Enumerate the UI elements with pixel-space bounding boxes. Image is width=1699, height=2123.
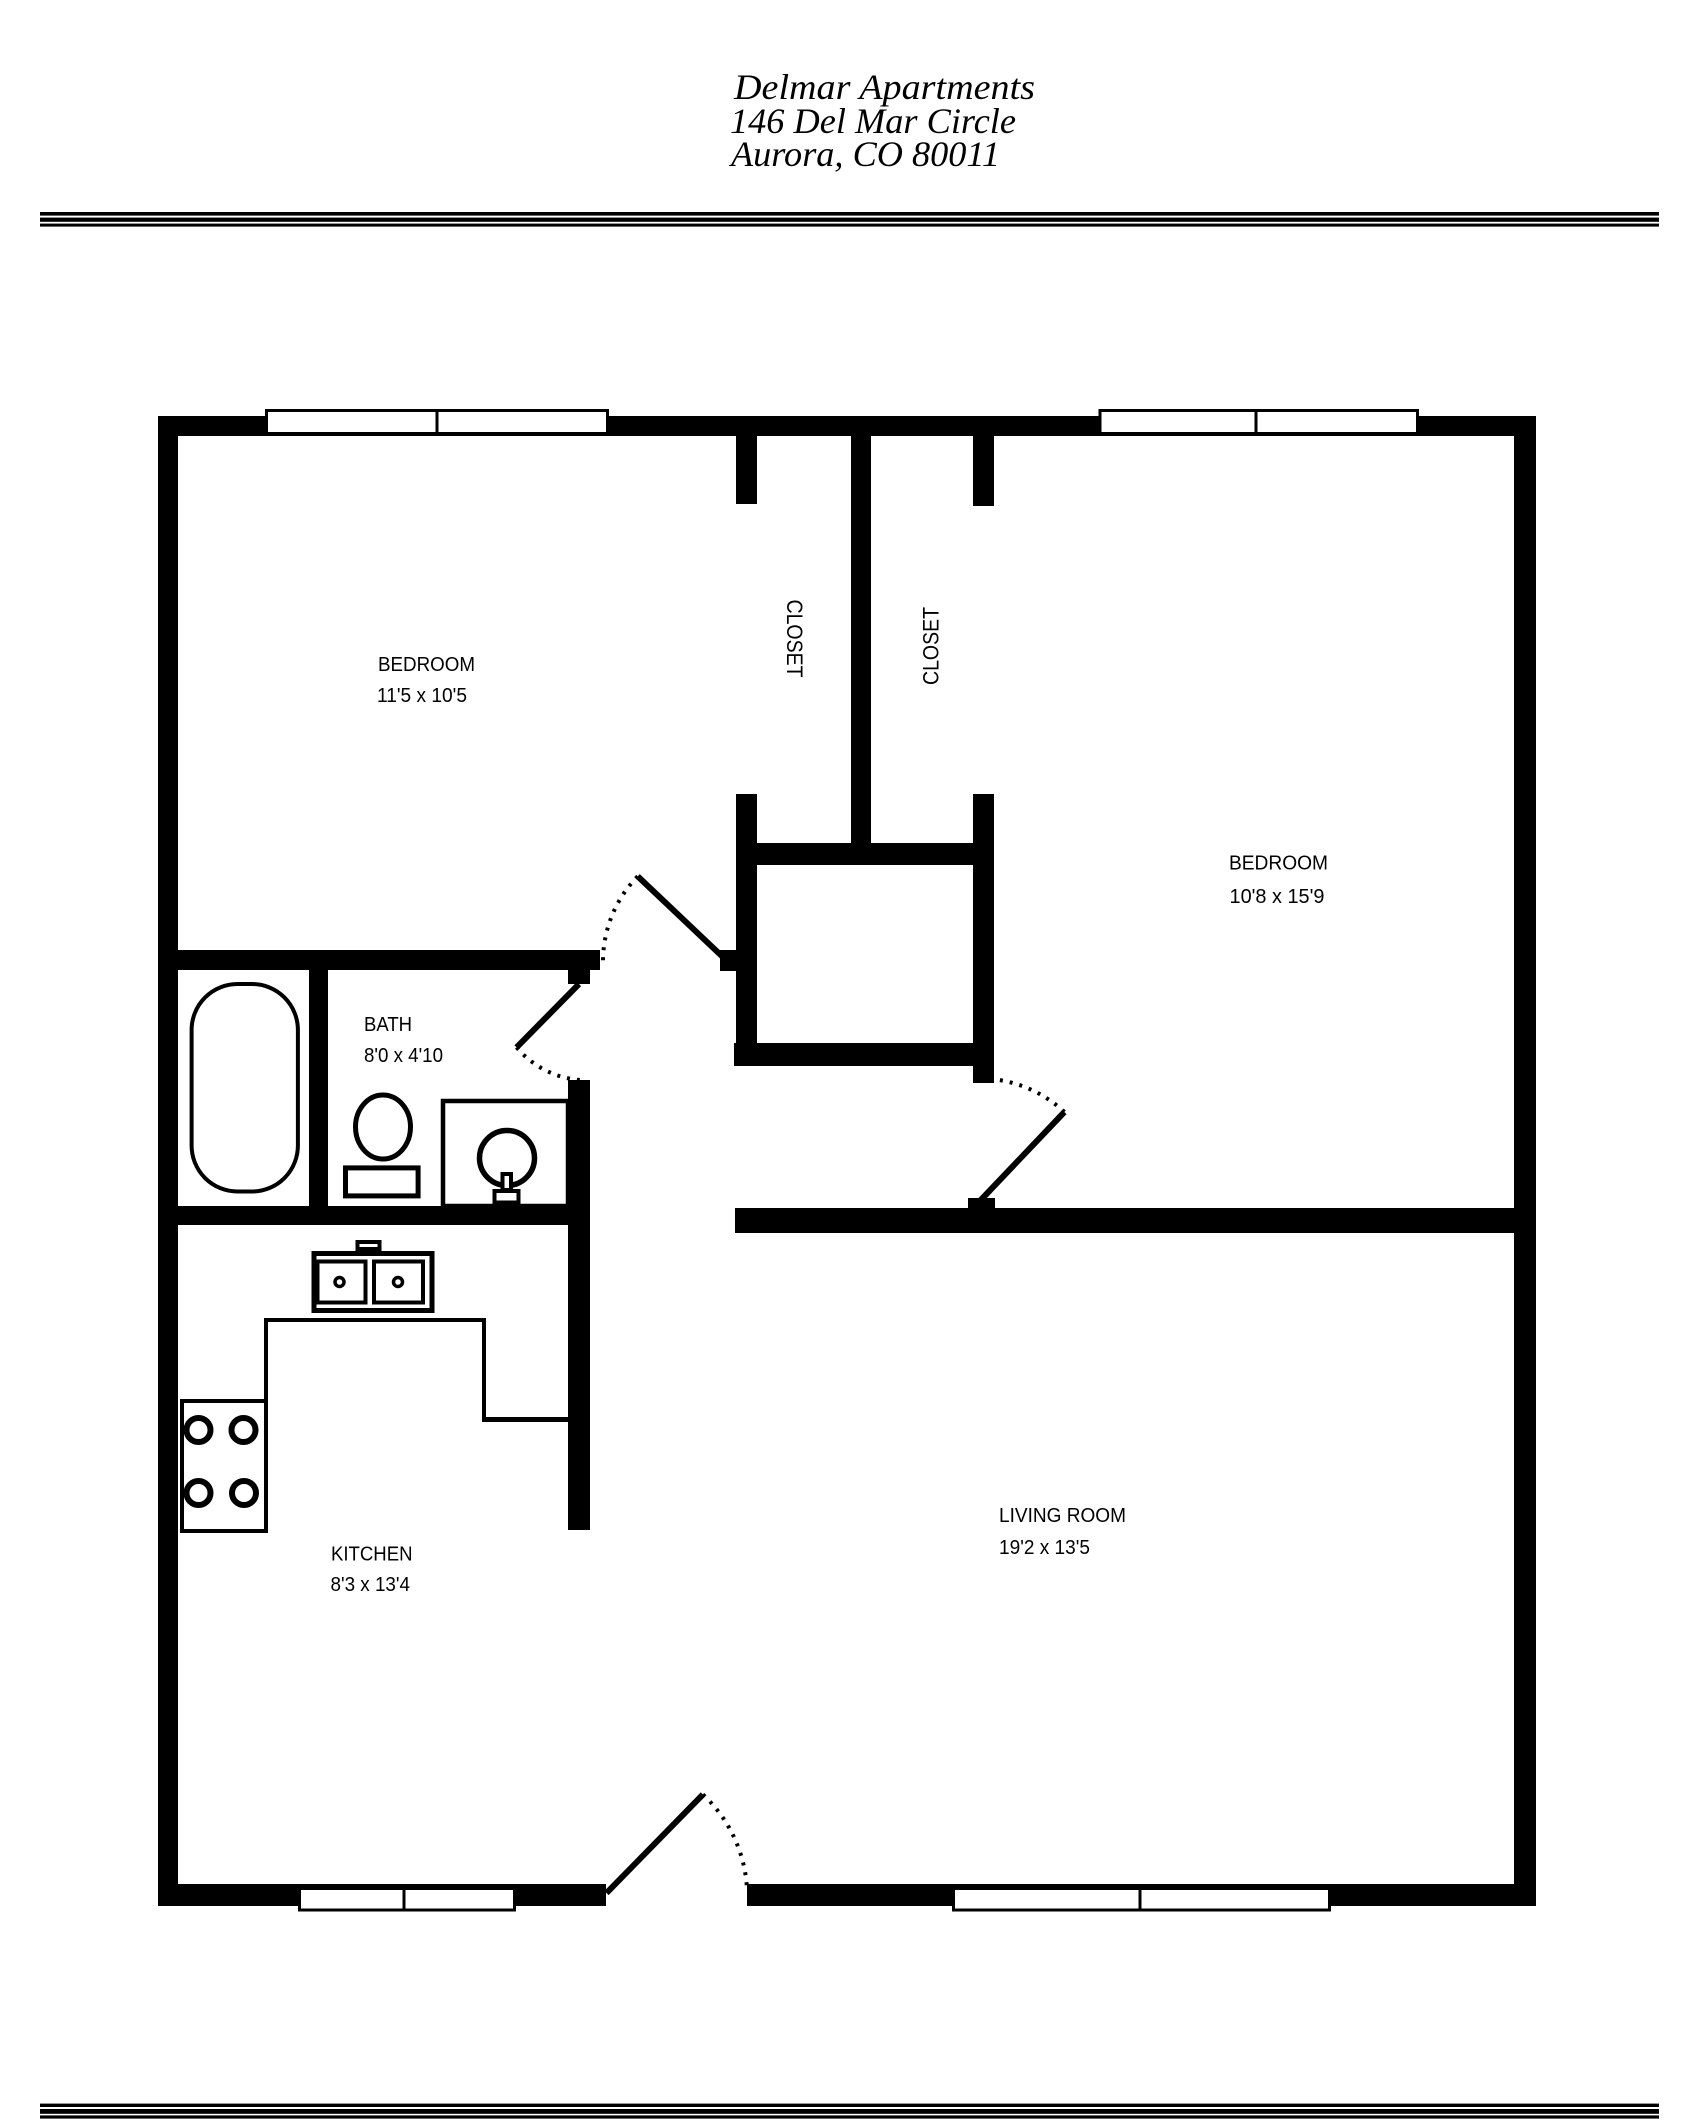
svg-text:LIVING ROOM: LIVING ROOM	[999, 1505, 1126, 1527]
svg-text:CLOSET: CLOSET	[919, 607, 944, 685]
svg-text:8'0 x 4'10: 8'0 x 4'10	[364, 1045, 443, 1067]
svg-text:BATH: BATH	[364, 1014, 412, 1036]
svg-text:BEDROOM: BEDROOM	[378, 654, 475, 676]
svg-text:BEDROOM: BEDROOM	[1229, 853, 1328, 875]
svg-text:10'8 x 15'9: 10'8 x 15'9	[1230, 886, 1325, 908]
svg-text:8'3 x 13'4: 8'3 x 13'4	[331, 1574, 411, 1596]
svg-text:KITCHEN: KITCHEN	[331, 1544, 413, 1566]
svg-text:CLOSET: CLOSET	[782, 600, 807, 678]
svg-text:11'5 x 10'5: 11'5 x 10'5	[377, 685, 467, 707]
svg-text:Aurora, CO 80011: Aurora, CO 80011	[729, 134, 1000, 174]
svg-text:19'2 x 13'5: 19'2 x 13'5	[999, 1537, 1090, 1559]
